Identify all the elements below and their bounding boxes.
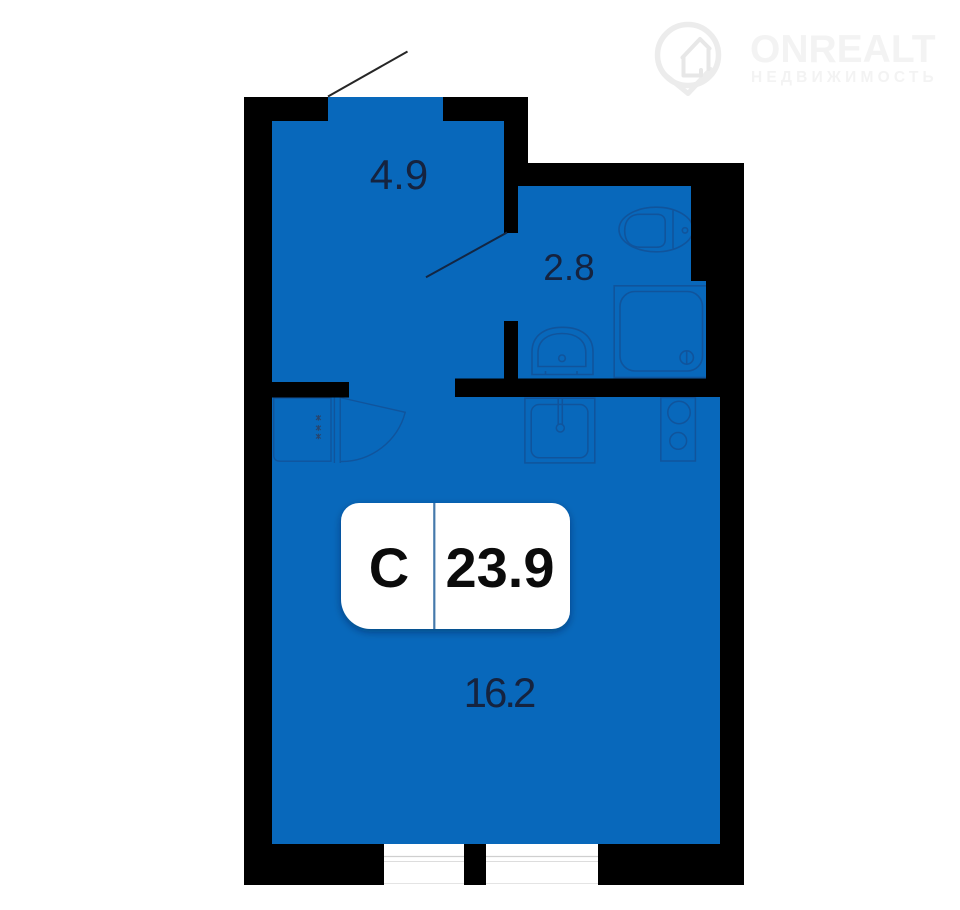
svg-text:ONREALT: ONREALT (750, 28, 936, 71)
svg-text:2.8: 2.8 (543, 247, 594, 288)
svg-text:4.9: 4.9 (370, 151, 428, 198)
svg-text:С: С (369, 536, 409, 599)
svg-text:НЕДВИЖИМОСТЬ: НЕДВИЖИМОСТЬ (751, 69, 938, 86)
svg-text:23.9: 23.9 (446, 536, 555, 599)
svg-text:16.2: 16.2 (464, 669, 535, 716)
